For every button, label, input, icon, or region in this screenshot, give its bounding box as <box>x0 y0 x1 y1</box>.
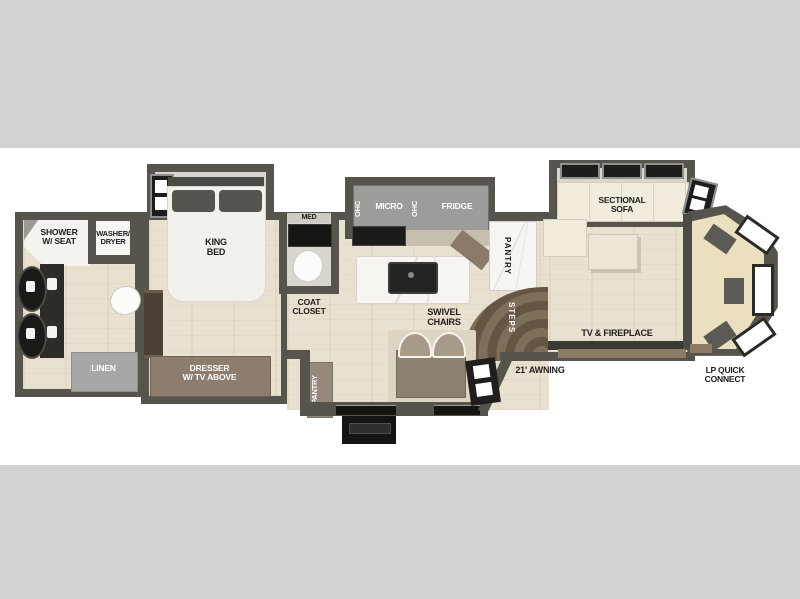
island-sink <box>388 262 438 294</box>
faucet <box>47 326 57 338</box>
linen-label: LINEN <box>71 364 136 373</box>
coat-closet-label: COAT CLOSET <box>277 298 341 316</box>
island-faucet <box>408 272 414 278</box>
rear-window <box>752 264 774 316</box>
tv-fireplace-label: TV & FIREPLACE <box>558 329 676 339</box>
entry-door <box>465 357 501 406</box>
faucet <box>26 328 35 339</box>
entry-window <box>336 405 396 415</box>
micro-label: MICRO <box>366 202 412 211</box>
swivel-chairs-label: SWIVEL CHAIRS <box>403 308 485 327</box>
lp-quick-connect-label: LP QUICK CONNECT <box>696 366 754 384</box>
sofa-window <box>602 163 642 179</box>
fireplace-base <box>558 349 686 358</box>
top-gray-band <box>0 0 800 148</box>
wardrobe <box>144 290 163 358</box>
awning-label: 21' AWNING <box>505 366 575 376</box>
entry-step-tread <box>349 423 391 434</box>
med-label: MED <box>279 214 339 222</box>
shower-label: SHOWER W/ SEAT <box>28 228 90 246</box>
sofa-window <box>644 163 684 179</box>
rear-speaker <box>724 278 744 304</box>
sectional-chaise <box>543 219 587 257</box>
faucet <box>26 281 35 292</box>
pillow <box>219 190 262 212</box>
washer-dryer-label: WASHER/ DRYER <box>88 230 138 246</box>
range-cooktop <box>352 226 406 246</box>
ohc-right-label: OHC <box>411 190 424 228</box>
king-bed-label: KING BED <box>190 238 242 257</box>
sofa-window <box>560 163 600 179</box>
pillow <box>172 190 215 212</box>
rear-cap <box>678 202 782 364</box>
med-cabinet <box>288 224 332 247</box>
fridge-label: FRIDGE <box>428 202 486 211</box>
rear-wall-strip <box>683 214 692 349</box>
floorplan-canvas: SHOWER W/ SEAT WASHER/ DRYER LINEN KING … <box>0 0 800 599</box>
bottom-gray-band <box>0 465 800 599</box>
ottoman <box>588 234 638 270</box>
steps-label: STEPS <box>501 294 515 342</box>
entry-window <box>434 405 480 415</box>
pantry-kitchen-label: PANTRY <box>497 228 511 284</box>
sectional-sofa-label: SECTIONAL SOFA <box>586 196 658 214</box>
faucet <box>47 278 57 290</box>
rear-ledge <box>690 344 712 353</box>
dresser-label: DRESSER W/ TV ABOVE <box>150 364 269 382</box>
